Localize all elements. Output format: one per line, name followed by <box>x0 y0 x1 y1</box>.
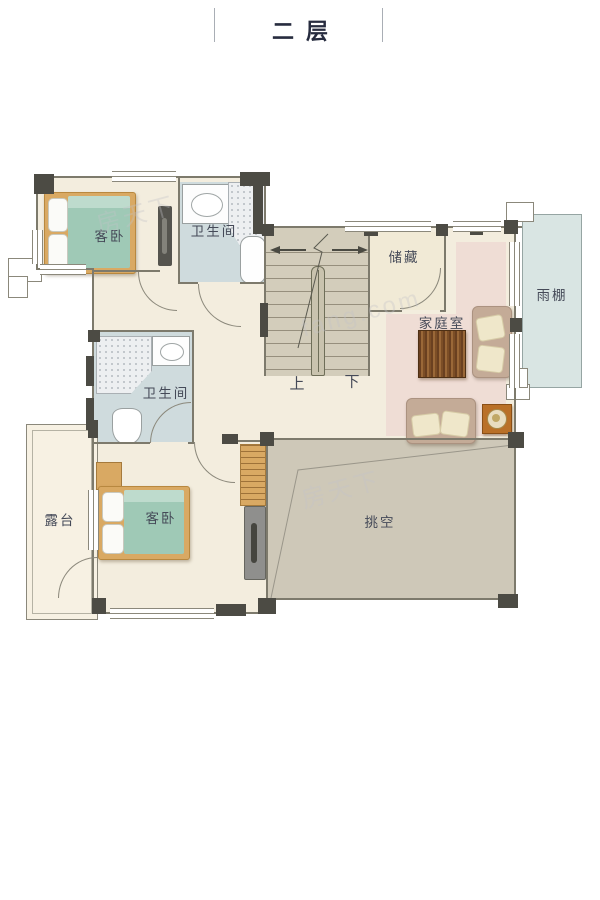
label-family: 家庭室 <box>419 312 466 332</box>
column-l <box>260 303 268 337</box>
column-n <box>508 432 524 448</box>
column-m <box>510 318 522 332</box>
family-table <box>418 330 466 378</box>
sofa-right-cushion-2 <box>476 344 506 373</box>
lamp-inner <box>492 414 500 422</box>
label-bath-top: 卫生间 <box>191 220 238 240</box>
window-top-family <box>453 221 501 232</box>
wall-storage-bottom-a <box>370 310 402 312</box>
column-o <box>260 432 274 446</box>
column-a <box>34 174 54 194</box>
column-t <box>498 594 518 608</box>
column-i <box>88 330 100 342</box>
window-bedroom-top <box>112 171 176 182</box>
wall-bath-mid-bottom-a <box>92 442 150 444</box>
wall-bottom-void <box>266 598 516 600</box>
label-bedroom-bottom: 客卧 <box>146 507 177 527</box>
label-bedroom-top: 客卧 <box>95 225 126 245</box>
wall-storage-right <box>444 232 446 312</box>
wall-stairs-left <box>264 226 266 376</box>
bath-top-sink-bowl <box>191 193 223 217</box>
label-storage: 储藏 <box>389 246 420 266</box>
bed-bottom-pillow-2 <box>102 524 124 554</box>
exterior-ledge-top-right <box>506 202 534 222</box>
wall-bath-top-bottom-a <box>178 282 198 284</box>
wall-bedroom-bath-top <box>178 176 180 284</box>
column-s <box>258 598 276 614</box>
label-stairs-up: 上 <box>289 373 304 394</box>
label-canopy: 雨棚 <box>537 284 568 304</box>
bed-top-fold <box>68 196 130 208</box>
bedroom-bottom-tv-cabinet <box>244 506 266 580</box>
window-family-right-lower <box>509 334 520 388</box>
page-title: 二层 <box>0 14 600 46</box>
sofa-bottom-cushion-1 <box>411 412 441 437</box>
bed-top-pillow-1 <box>48 198 68 232</box>
window-top-storage <box>345 221 431 232</box>
cabinet-slit <box>162 218 167 254</box>
floor-plan-page: 二层 <box>0 0 600 900</box>
column-q <box>216 604 246 616</box>
bath-mid-toilet <box>112 408 142 444</box>
label-bath-mid: 卫生间 <box>143 382 190 402</box>
wall-bath-mid-right <box>192 330 194 444</box>
wall-bath-top-bottom-b <box>240 282 266 284</box>
bedroom-top-cabinet <box>158 206 172 266</box>
family-rug-upper <box>456 242 506 314</box>
wall-void-left <box>266 434 268 600</box>
window-bedroom-bottom-left <box>88 490 99 550</box>
bath-top-bathtub <box>240 236 266 284</box>
bed-bottom-fold <box>124 490 184 502</box>
exterior-ledge-left-b <box>8 276 28 298</box>
bath-mid-sink <box>152 336 190 366</box>
label-void: 挑空 <box>365 511 396 531</box>
column-r <box>92 598 106 614</box>
sofa-bottom-cushion-2 <box>439 410 470 438</box>
wall-void-top <box>266 438 516 440</box>
column-d <box>262 224 274 236</box>
column-h <box>504 220 518 234</box>
bath-top-sink <box>182 184 230 224</box>
wall-bath-mid-top <box>92 330 194 332</box>
window-left-step <box>40 264 86 275</box>
window-left-upper <box>32 230 43 264</box>
bed-bottom-pillow-1 <box>102 492 124 522</box>
window-family-right-upper <box>509 242 520 306</box>
column-u <box>88 420 98 438</box>
column-f <box>436 224 448 236</box>
wall-stairs-right <box>368 226 370 376</box>
label-terrace: 露台 <box>45 509 76 529</box>
window-bedroom-bottom <box>110 608 214 619</box>
bath-mid-sink-bowl <box>160 343 184 361</box>
sofa-right-cushion-1 <box>475 314 506 342</box>
stairs-break-line-and-arrows <box>266 230 370 360</box>
column-j <box>86 356 94 386</box>
tv-slit <box>251 523 257 563</box>
label-stairs-down: 下 <box>344 371 359 392</box>
bedroom-bottom-wardrobe <box>240 444 266 506</box>
